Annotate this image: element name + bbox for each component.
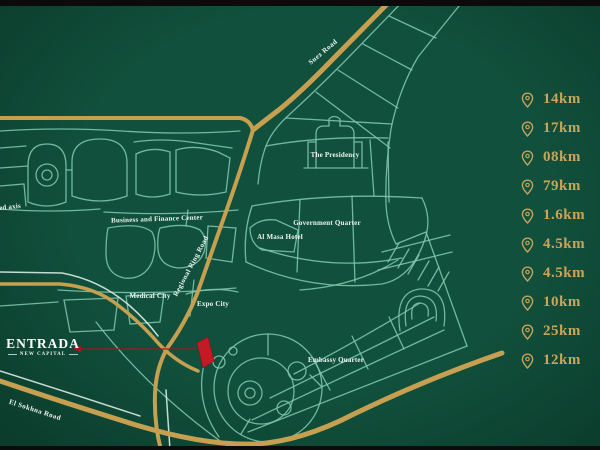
distance-value: 17km bbox=[543, 121, 581, 136]
map-pin-icon bbox=[521, 295, 534, 311]
logo-brand-text: ENTRADA bbox=[5, 337, 81, 351]
distance-item: 4.5km bbox=[521, 230, 585, 259]
map-pin-icon bbox=[521, 208, 534, 224]
map-label-the-presidency: The Presidency bbox=[311, 151, 360, 159]
logo-tagline-row: NEW CAPITAL bbox=[5, 352, 81, 357]
entrada-site-marker[interactable] bbox=[197, 337, 214, 368]
distance-legend: 14km 17km 08km 79km 1.6km 4.5km 4.5km 1 bbox=[521, 85, 585, 375]
map-pin-icon bbox=[521, 237, 534, 253]
map-label-government-quarter: Government Quarter bbox=[293, 219, 361, 227]
distance-value: 79km bbox=[543, 179, 581, 194]
logo-tagline-text: NEW CAPITAL bbox=[20, 352, 66, 357]
distance-value: 25km bbox=[543, 324, 581, 339]
map-label-embassy-quarter: Embassy Quarter bbox=[308, 356, 364, 364]
tagline-rule-right bbox=[69, 354, 78, 355]
distance-item: 17km bbox=[521, 114, 585, 143]
site-callout-line bbox=[73, 346, 196, 353]
tagline-rule-left bbox=[8, 354, 17, 355]
map-canvas: ed axis Business and Finance Center Medi… bbox=[0, 0, 600, 450]
distance-item: 10km bbox=[521, 288, 585, 317]
map-pin-icon bbox=[521, 92, 534, 108]
map-pin-icon bbox=[521, 179, 534, 195]
map-label-medical-city: Medical City bbox=[129, 292, 170, 300]
distance-value: 12km bbox=[543, 353, 581, 368]
distance-item: 4.5km bbox=[521, 259, 585, 288]
distance-item: 25km bbox=[521, 317, 585, 346]
letterbox-bottom bbox=[0, 446, 600, 450]
letterbox-top bbox=[0, 0, 600, 6]
map-pin-icon bbox=[521, 266, 534, 282]
entrada-logo: ENTRADA NEW CAPITAL bbox=[5, 337, 81, 357]
highway-road-network bbox=[0, 0, 502, 450]
minor-road-network bbox=[0, 0, 468, 448]
distance-value: 08km bbox=[543, 150, 581, 165]
distance-value: 4.5km bbox=[543, 237, 585, 252]
map-label-expo-city: Expo City bbox=[197, 300, 229, 308]
distance-value: 10km bbox=[543, 295, 581, 310]
map-pin-icon bbox=[521, 324, 534, 340]
distance-item: 79km bbox=[521, 172, 585, 201]
distance-item: 1.6km bbox=[521, 201, 585, 230]
distance-item: 08km bbox=[521, 143, 585, 172]
distance-value: 14km bbox=[543, 92, 581, 107]
distance-item: 14km bbox=[521, 85, 585, 114]
distance-value: 1.6km bbox=[543, 208, 585, 223]
map-pin-icon bbox=[521, 150, 534, 166]
map-label-al-masa-hotel: Al Masa Hotel bbox=[257, 233, 303, 241]
distance-item: 12km bbox=[521, 346, 585, 375]
map-pin-icon bbox=[521, 353, 534, 369]
distance-value: 4.5km bbox=[543, 266, 585, 281]
map-pin-icon bbox=[521, 121, 534, 137]
